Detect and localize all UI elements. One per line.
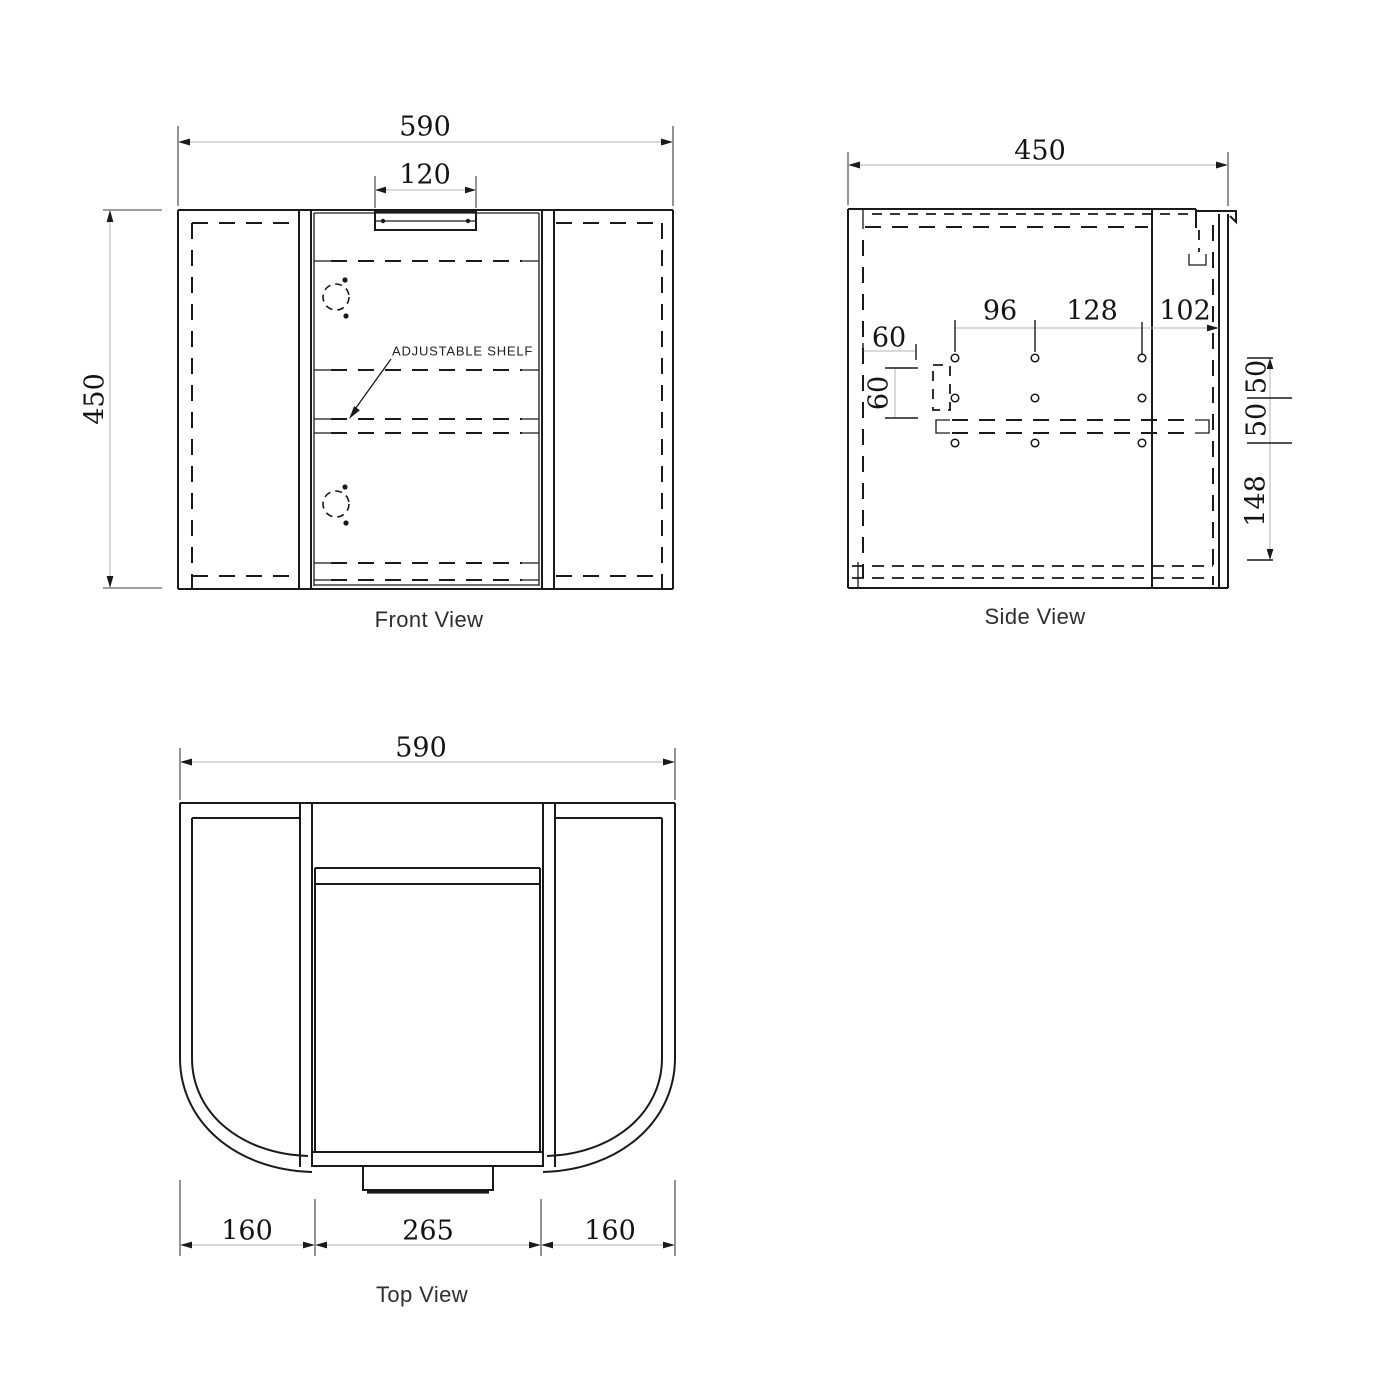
front-handle-width-dim: 120 xyxy=(399,162,451,189)
side-hole-span-1-dim: 96 xyxy=(983,298,1017,325)
front-overall-height-dim: 450 xyxy=(82,373,109,425)
drawing-linework xyxy=(0,0,1400,1400)
side-pin-block-dim: 60 xyxy=(866,376,893,410)
side-front-inset-dim: 60 xyxy=(872,325,906,352)
top-view-linework xyxy=(180,748,675,1256)
side-view-linework xyxy=(848,152,1292,588)
side-hole-span-3-dim: 102 xyxy=(1159,298,1211,325)
front-overall-width-dim: 590 xyxy=(399,114,451,141)
top-view-label: Top View xyxy=(376,1282,468,1308)
hinge-top-icon xyxy=(323,277,349,318)
shelf-leader-arrow xyxy=(349,359,391,419)
top-right-panel-dim: 160 xyxy=(584,1218,636,1245)
side-hole-span-2-dim: 128 xyxy=(1066,298,1118,325)
front-view-linework xyxy=(103,126,673,589)
top-handle xyxy=(363,1166,493,1190)
wall-bracket-icon xyxy=(1196,209,1236,228)
side-view-label: Side View xyxy=(984,604,1085,630)
side-overall-depth-dim: 450 xyxy=(1014,138,1066,165)
top-left-panel-dim: 160 xyxy=(221,1218,273,1245)
front-hidden-lines xyxy=(314,261,539,580)
technical-drawing-canvas: 590 120 450 ADJUSTABLE SHELF Front View … xyxy=(0,0,1400,1400)
top-overall-width-dim: 590 xyxy=(395,735,447,762)
front-view-label: Front View xyxy=(375,607,484,633)
side-row-gap-bottom-dim: 50 xyxy=(1244,403,1271,437)
top-door-width-dim: 265 xyxy=(402,1218,454,1245)
side-row-gap-top-dim: 50 xyxy=(1244,360,1271,394)
side-bottom-clearance-dim: 148 xyxy=(1243,475,1270,527)
adjustable-shelf-annotation: ADJUSTABLE SHELF xyxy=(392,344,533,359)
hinge-bottom-icon xyxy=(323,484,349,525)
